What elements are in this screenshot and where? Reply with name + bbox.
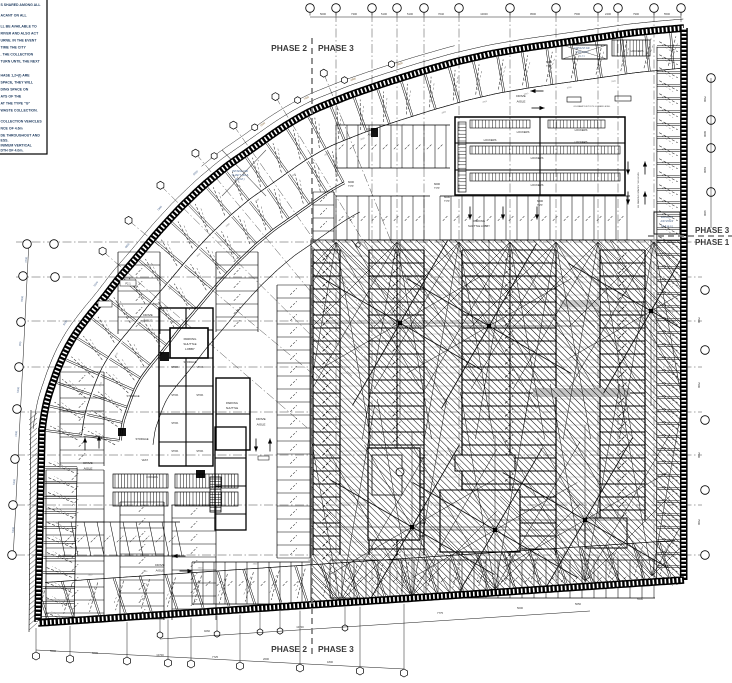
svg-text:DRIVE: DRIVE — [83, 461, 92, 465]
svg-text:PARKING: PARKING — [473, 219, 485, 223]
svg-text:TIME THE CITY: TIME THE CITY — [1, 46, 27, 50]
svg-text:SHUTTLE: SHUTTLE — [183, 342, 196, 346]
svg-text:LOCKERS: LOCKERS — [531, 156, 544, 160]
svg-text:P2.1: P2.1 — [125, 282, 131, 286]
svg-text:5500: 5500 — [637, 597, 643, 601]
svg-text:7500: 7500 — [697, 452, 701, 458]
svg-text:7725: 7725 — [212, 655, 218, 659]
svg-text:. THE COLLECTION: . THE COLLECTION — [1, 53, 34, 57]
svg-text:2400: 2400 — [605, 12, 611, 16]
svg-text:NCE OF 4.6m: NCE OF 4.6m — [1, 127, 23, 131]
svg-text:DING SPACE ON: DING SPACE ON — [1, 88, 29, 92]
svg-text:S SHARED AMONG ALL: S SHARED AMONG ALL — [1, 3, 42, 7]
svg-text:TYP.: TYP. — [348, 184, 354, 188]
svg-text:5000: 5000 — [11, 526, 16, 533]
svg-text:DRIVE: DRIVE — [256, 417, 265, 421]
svg-text:PHASE 1: PHASE 1 — [695, 238, 730, 247]
svg-text:STORAGE: STORAGE — [135, 437, 148, 441]
svg-text:6000: 6000 — [444, 195, 450, 199]
svg-text:4600: 4600 — [703, 210, 707, 216]
svg-text:7775: 7775 — [437, 611, 443, 615]
svg-text:AISLE: AISLE — [368, 133, 377, 137]
svg-text:7500: 7500 — [697, 519, 701, 525]
svg-text:COLLECTION VEHICLES: COLLECTION VEHICLES — [1, 120, 43, 124]
svg-text:INIMUM VERTICAL: INIMUM VERTICAL — [1, 144, 33, 148]
svg-text:LOCKERS: LOCKERS — [631, 49, 644, 53]
svg-text:STOR.: STOR. — [171, 366, 179, 369]
svg-text:PHASE 3: PHASE 3 — [318, 644, 354, 654]
svg-text:SQ.M.): SQ.M.) — [235, 177, 244, 181]
svg-text:7500: 7500 — [703, 96, 707, 102]
svg-text:6000: 6000 — [703, 131, 707, 137]
svg-text:8300: 8300 — [703, 167, 707, 173]
svg-text:1000: 1000 — [14, 430, 19, 437]
svg-text:4700: 4700 — [24, 256, 29, 263]
svg-text:7300: 7300 — [351, 12, 357, 16]
svg-text:6000: 6000 — [537, 199, 543, 203]
svg-text:PHASE 2: PHASE 2 — [271, 43, 307, 53]
svg-text:9000: 9000 — [20, 295, 25, 302]
svg-text:ACANT ON ALL: ACANT ON ALL — [1, 14, 28, 18]
svg-text:2600: 2600 — [263, 657, 269, 661]
svg-text:LOCKERS: LOCKERS — [146, 476, 158, 479]
svg-text:STOR.: STOR. — [196, 366, 204, 369]
svg-text:AISLE: AISLE — [156, 569, 165, 573]
svg-text:5050: 5050 — [575, 602, 581, 606]
svg-text:AISLE: AISLE — [257, 423, 266, 427]
svg-text:LOCKERS: LOCKERS — [575, 128, 588, 132]
svg-text:7500: 7500 — [574, 12, 580, 16]
svg-text:111 PARKING SPACES THIS LEVEL: 111 PARKING SPACES THIS LEVEL — [637, 171, 640, 208]
svg-text:10000: 10000 — [480, 12, 488, 16]
svg-text:URNE. IN THE EVENT: URNE. IN THE EVENT — [1, 39, 38, 43]
svg-text:5000: 5000 — [320, 12, 326, 16]
svg-text:6% RAMP DN TO P4 LOWER LEVEL: 6% RAMP DN TO P4 LOWER LEVEL — [574, 105, 611, 108]
svg-text:LL BE AVAILABLE TO: LL BE AVAILABLE TO — [1, 25, 37, 29]
svg-text:6000: 6000 — [434, 182, 440, 186]
svg-text:PARKING: PARKING — [226, 401, 238, 405]
svg-text:AISLE: AISLE — [84, 467, 93, 471]
svg-text:LOCKERS: LOCKERS — [484, 138, 497, 142]
svg-text:SHAFT (24.0: SHAFT (24.0 — [575, 51, 589, 54]
svg-text:5000: 5000 — [12, 478, 17, 485]
svg-text:TURN UNTIL THE NEXT: TURN UNTIL THE NEXT — [1, 60, 41, 64]
svg-text:LOCKERS: LOCKERS — [531, 183, 544, 187]
svg-text:STOR.: STOR. — [171, 422, 179, 425]
svg-text:STOR.: STOR. — [196, 394, 204, 397]
svg-text:PARKING: PARKING — [184, 337, 198, 341]
svg-text:STOR.: STOR. — [171, 394, 179, 397]
svg-text:SHUTTLE LOBBY: SHUTTLE LOBBY — [468, 224, 490, 228]
svg-text:10700: 10700 — [296, 625, 304, 629]
svg-text:5100: 5100 — [407, 12, 413, 16]
svg-text:STOR.: STOR. — [171, 450, 179, 453]
svg-text:DRIVE: DRIVE — [143, 313, 152, 317]
svg-text:sq.m.): sq.m.) — [579, 56, 585, 58]
svg-text:5100: 5100 — [381, 12, 387, 16]
svg-text:PHASE 3: PHASE 3 — [695, 226, 730, 235]
svg-text:5500: 5500 — [664, 12, 670, 16]
svg-text:SPACE, THEY WILL: SPACE, THEY WILL — [1, 81, 34, 85]
svg-text:5000: 5000 — [517, 606, 523, 610]
svg-text:PHASE 3: PHASE 3 — [318, 43, 354, 53]
svg-text:7500: 7500 — [697, 317, 701, 323]
svg-text:1800: 1800 — [327, 660, 333, 664]
svg-text:9500: 9500 — [530, 12, 536, 16]
svg-text:TYP.: TYP. — [434, 186, 440, 190]
svg-text:WASTE COLLECTION.: WASTE COLLECTION. — [1, 109, 38, 113]
svg-text:5000: 5000 — [16, 386, 21, 393]
svg-text:VEST.: VEST. — [142, 459, 149, 462]
svg-text:7900: 7900 — [633, 12, 639, 16]
svg-text:LOCKERS: LOCKERS — [517, 130, 530, 134]
svg-text:RIVER AND ALSO ACT: RIVER AND ALSO ACT — [1, 32, 40, 36]
svg-text:HASE 1,2+(I) ARE: HASE 1,2+(I) ARE — [1, 74, 31, 78]
svg-text:AT THE TYPE “G”: AT THE TYPE “G” — [1, 102, 31, 106]
svg-text:DE THROUGHOUT AND: DE THROUGHOUT AND — [1, 134, 41, 138]
svg-text:7040: 7040 — [438, 12, 444, 16]
svg-text:SHUTTLE: SHUTTLE — [226, 406, 238, 410]
svg-text:AIR SHAFT: AIR SHAFT — [660, 220, 674, 223]
svg-text:STOR.: STOR. — [196, 450, 204, 453]
svg-text:DTH OF 4.0m.: DTH OF 4.0m. — [1, 149, 24, 153]
svg-text:TYP.: TYP. — [537, 203, 543, 207]
svg-text:9260: 9260 — [204, 629, 210, 633]
svg-text:AYS OF THE: AYS OF THE — [1, 95, 22, 99]
svg-text:ESS.: ESS. — [1, 139, 9, 143]
svg-text:LOBBY: LOBBY — [185, 347, 195, 351]
svg-text:LOCKERS: LOCKERS — [575, 140, 588, 144]
svg-text:7500: 7500 — [697, 382, 701, 388]
svg-text:AISLE: AISLE — [517, 100, 526, 104]
svg-text:PHASE 2: PHASE 2 — [271, 644, 307, 654]
svg-text:DRIVE: DRIVE — [155, 563, 164, 567]
svg-text:TYP.: TYP. — [444, 199, 450, 203]
svg-text:6000: 6000 — [348, 180, 354, 184]
